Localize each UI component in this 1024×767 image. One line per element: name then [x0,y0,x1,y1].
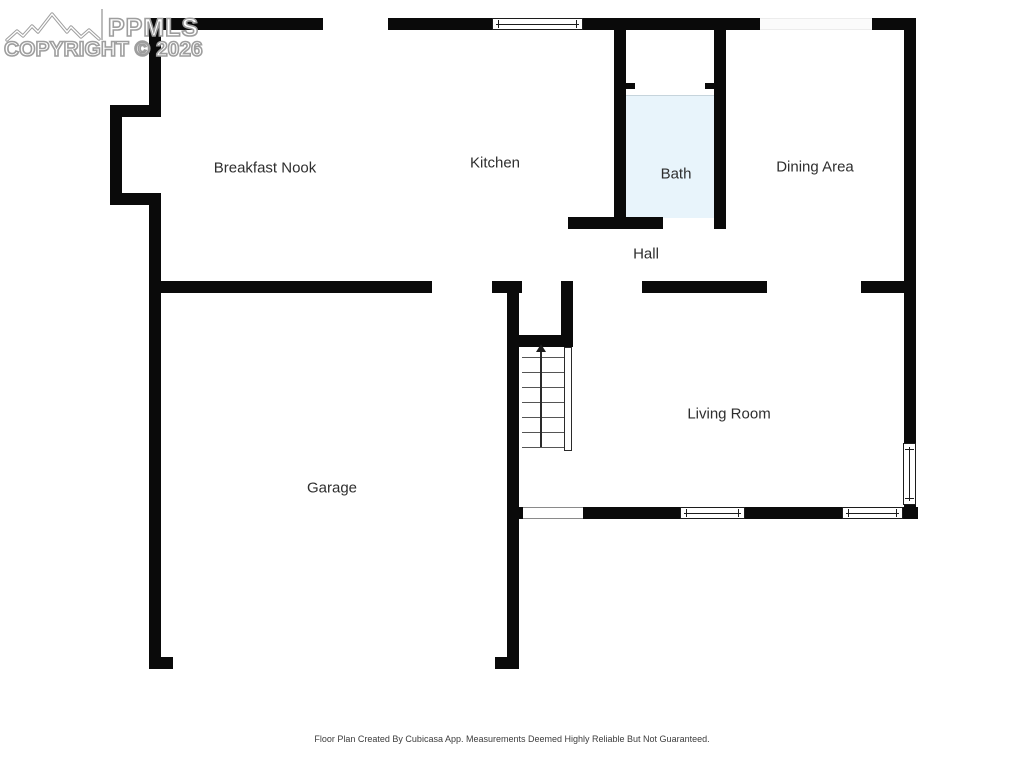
bath-floor [626,95,714,218]
window-cap-line [896,509,897,517]
living-room-window [842,507,903,519]
watermark-copyright: COPYRIGHT © 2026 [4,38,203,62]
bottom-wall-segment [745,507,842,519]
living-room-right-window [903,443,916,505]
room-label-hall: Hall [633,246,659,263]
watermark-divider [101,9,103,40]
window-cap-line [905,498,914,499]
stair-tread [522,372,564,373]
room-label-kitchen: Kitchen [470,155,520,172]
stair-tread [522,402,564,403]
bath-bottom-wall [568,217,663,229]
room-label-breakfast-nook: Breakfast Nook [214,160,317,177]
window-pane-line [496,24,579,25]
up-arrow-icon [536,344,546,352]
bath-shower-stub [705,83,714,89]
bath-shower-stub [626,83,635,89]
window-cap-line [686,509,687,517]
footer-disclaimer: Floor Plan Created By Cubicasa App. Meas… [0,734,1024,744]
top-wall-segment [583,18,760,30]
garage-bottom-stub [495,657,519,669]
stair-tread [522,432,564,433]
bottom-wall-stub [515,507,523,519]
kitchen-window [492,18,583,30]
dining-top-opening [760,18,872,30]
window-pane-line [909,447,910,501]
living-room-window [680,507,745,519]
patio-door-opening [523,507,583,519]
bottom-wall-corner [903,507,918,519]
stairs-side-rail [564,347,572,451]
window-cap-line [498,20,499,28]
watermark: PPMLS COPYRIGHT © 2026 [4,4,214,68]
window-cap-line [738,509,739,517]
bath-left-wall [614,30,626,229]
window-cap-line [576,20,577,28]
window-cap-line [905,449,914,450]
mid-wall-segment [149,281,432,293]
left-wall-lower [149,193,161,669]
mid-wall-segment [642,281,767,293]
bay-left-wall [110,105,122,205]
room-label-living-room: Living Room [687,406,770,423]
bath-right-wall [714,18,726,229]
right-wall-upper [904,18,916,443]
room-label-dining-area: Dining Area [776,159,854,176]
garage-bottom-stub [149,657,173,669]
stair-tread [522,417,564,418]
window-pane-line [846,513,899,514]
window-cap-line [848,509,849,517]
stair-tread [522,357,564,358]
stair-tread [522,447,564,448]
bottom-wall-segment [583,507,680,519]
room-label-bath: Bath [661,166,692,183]
floor-plan-canvas: Breakfast Nook Kitchen Bath Dining Area … [0,0,1024,767]
stairs-direction-line [540,352,542,447]
window-pane-line [684,513,741,514]
stair-tread [522,387,564,388]
top-wall-segment [388,18,492,30]
room-label-garage: Garage [307,480,357,497]
